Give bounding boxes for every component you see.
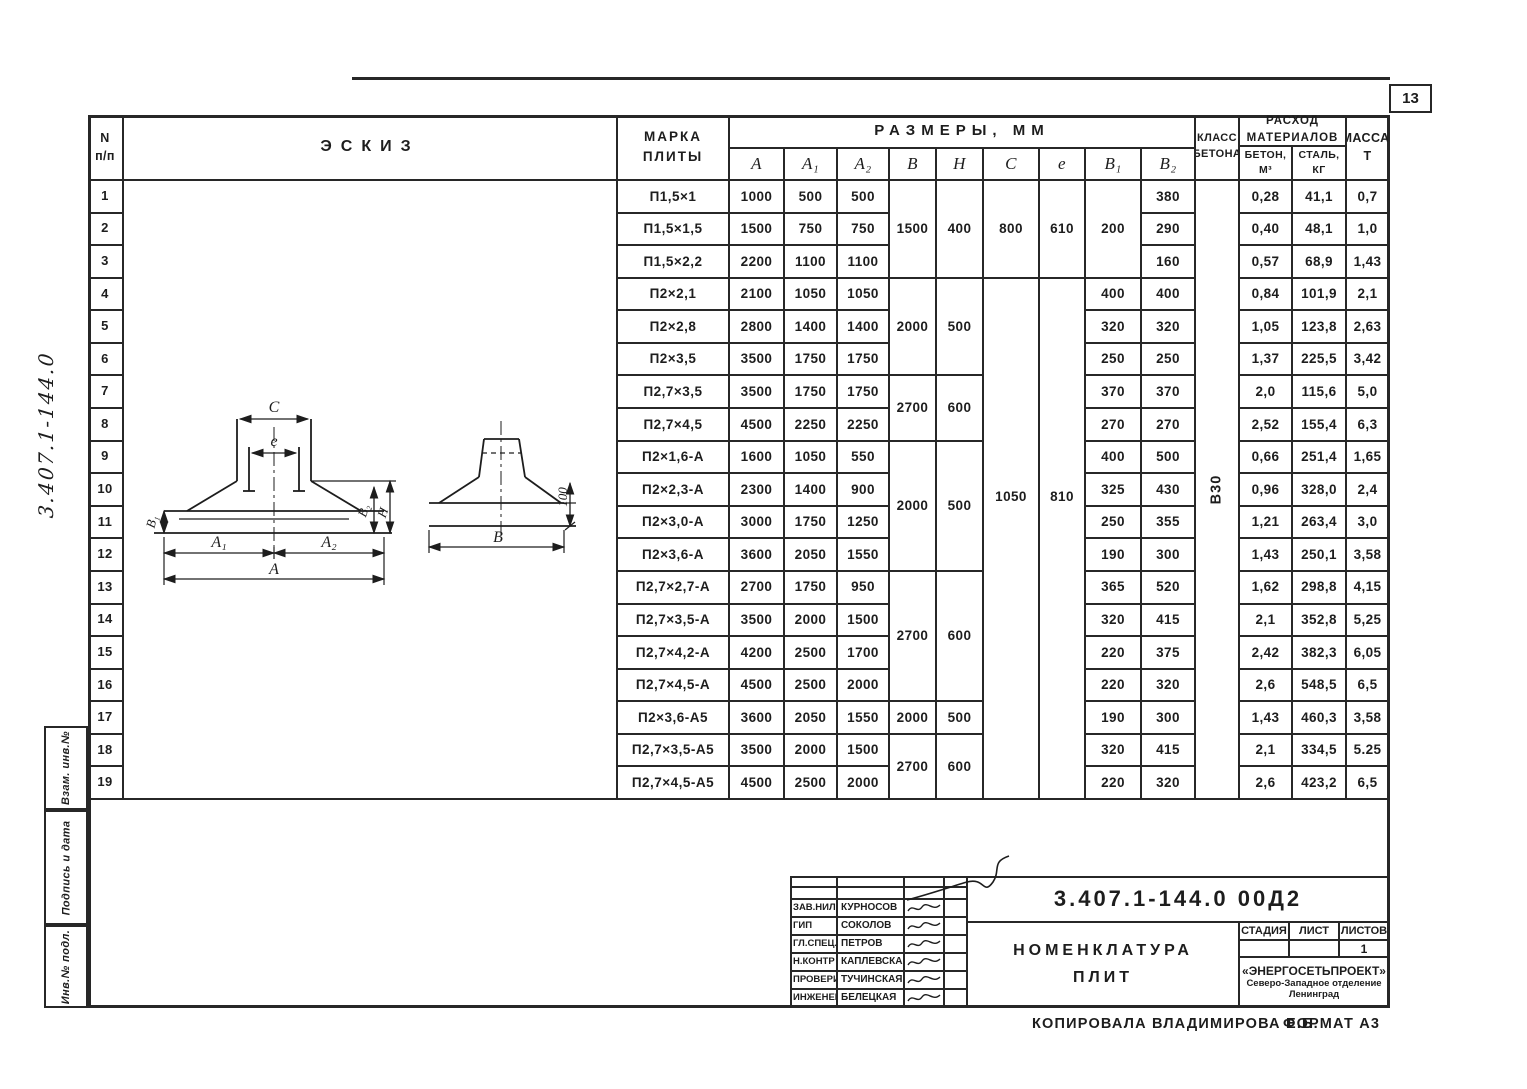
header-mark-text: МАРКА [644,127,702,147]
cell-concrete-13-text: 1,62 [1252,577,1280,597]
cell-e-rows1-3-text: 610 [1050,219,1074,239]
cell-b2-13-text: 520 [1156,577,1180,597]
cell-concrete-18-text: 2,1 [1256,740,1276,760]
cell-b2-8-text: 270 [1156,415,1180,435]
cell-a1-10-text: 1400 [795,480,827,500]
header-concrete-text: БЕТОН, [1245,148,1287,163]
cell-b1-6: 250 [1086,344,1142,377]
cell-a2-3-text: 1100 [848,252,879,272]
sheets-label-cell: ЛИСТОВ [1340,923,1390,941]
cell-b-rows13-16: 2700 [890,572,937,702]
cell-num-17: 17 [88,702,124,735]
cell-num-11-text: 11 [98,513,113,532]
cell-steel-18-text: 334,5 [1301,740,1337,760]
sig-date-6 [945,990,968,1008]
cell-b2-10: 430 [1142,474,1196,507]
cell-mark-13: П2,7×2,7-А [618,572,730,605]
cell-a1-3-text: 1100 [795,252,826,272]
header-materials-group-text: МАТЕРИАЛОВ [1247,130,1339,147]
cell-mass-14: 5,25 [1347,605,1390,638]
cell-mark-10-text: П2×2,3-А [642,480,704,500]
cell-a1-8: 2250 [785,409,838,442]
cell-b1-14: 320 [1086,605,1142,638]
dim-label-b1: B₁ [143,514,161,530]
cell-concrete-11-text: 1,21 [1252,512,1280,532]
header-size-e: e [1040,149,1086,181]
cell-num-5-text: 5 [101,317,109,336]
stage-label: СТАДИЯ [1241,925,1287,937]
cell-a2-11: 1250 [838,507,890,540]
cell-a1-5: 1400 [785,311,838,344]
cell-b2-19-text: 320 [1156,773,1180,793]
cell-mark-11: П2×3,0-А [618,507,730,540]
cell-mark-9: П2×1,6-А [618,442,730,475]
cell-mass-15-text: 6,05 [1354,643,1382,663]
cell-a-12-text: 3600 [741,545,773,565]
cell-a1-15-text: 2500 [795,643,827,663]
cell-steel-7-text: 115,6 [1301,382,1336,402]
cell-mark-8: П2,7×4,5 [618,409,730,442]
cell-mass-11: 3,0 [1347,507,1390,540]
cell-steel-16-text: 548,5 [1301,675,1337,695]
cell-a2-2-text: 750 [851,219,875,239]
cell-mark-9-text: П2×1,6-А [642,447,704,467]
cell-b1-12-text: 190 [1101,545,1125,565]
cell-num-19: 19 [88,767,124,800]
cell-a2-3: 1100 [838,246,890,279]
header-materials-group: РАСХОДМАТЕРИАЛОВ [1240,115,1347,147]
cell-b1-11-text: 250 [1101,512,1125,532]
cell-num-12-text: 12 [97,545,112,564]
cell-h-rows7-8-text: 600 [948,398,972,418]
sheet-top-edge-line [352,77,1390,80]
cell-a1-12-text: 2050 [795,545,827,565]
cell-b2-14: 415 [1142,605,1196,638]
header-concrete: БЕТОН,М³ [1240,147,1293,181]
sheets-value: 1 [1361,942,1368,956]
cell-mark-3-text: П1,5×2,2 [643,252,702,272]
sig-role-6: ИНЖЕНЕР [790,990,838,1008]
cell-concrete-12: 1,43 [1240,539,1293,572]
cell-concrete-3: 0,57 [1240,246,1293,279]
cell-b2-11-text: 355 [1156,512,1180,532]
header-size-b1-text: B₁ [1104,152,1121,177]
cell-a1-2-text: 750 [799,219,823,239]
header-concrete-text: М³ [1259,163,1272,178]
sig-spacer-cell [790,876,838,888]
cell-a2-8-text: 2250 [847,415,879,435]
cell-concrete-class-text: В30 [1206,475,1227,505]
cell-mark-14: П2,7×3,5-А [618,605,730,638]
sig-name-2: СОКОЛОВ [838,918,905,936]
dim-label-c: C [269,399,280,416]
header-num-text: п/п [95,147,115,165]
cell-steel-10-text: 328,0 [1301,480,1337,500]
header-steel-text: КГ [1312,163,1325,178]
cell-concrete-9-text: 0,66 [1252,447,1280,467]
header-mark: МАРКАПЛИТЫ [618,115,730,181]
cell-num-14-text: 14 [97,610,112,629]
sig-name-5-text: ТУЧИНСКАЯ [841,973,903,988]
cell-mass-8-text: 6,3 [1358,415,1378,435]
cell-mass-3: 1,43 [1347,246,1390,279]
cell-a1-14-text: 2000 [795,610,827,630]
cell-b2-6-text: 250 [1156,349,1180,369]
cell-mass-4: 2,1 [1347,279,1390,312]
cell-a2-7: 1750 [838,376,890,409]
cell-a-2: 1500 [730,214,785,247]
cell-concrete-7-text: 2,0 [1256,382,1276,402]
cell-concrete-6: 1,37 [1240,344,1293,377]
sheet-value-cell [1290,941,1340,958]
sig-role-5-text: ПРОВЕРИЛА [793,973,838,987]
dim-label-h: H [374,505,392,520]
sig-signature-3 [905,936,945,954]
cell-concrete-4: 0,84 [1240,279,1293,312]
cell-num-16-text: 16 [97,676,112,695]
cell-num-9-text: 9 [101,447,109,466]
cell-mark-19-text: П2,7×4,5-А5 [632,773,714,793]
cell-concrete-19: 2,6 [1240,767,1293,800]
sig-signature-2 [905,918,945,936]
doc-number: 3.407.1-144.0 00Д2 [1054,886,1302,912]
cell-b2-11: 355 [1142,507,1196,540]
title-block-doc-number: 3.407.1-144.0 00Д2 [968,876,1390,923]
cell-steel-15: 382,3 [1293,637,1347,670]
cell-a2-15-text: 1700 [847,643,879,663]
cell-mass-6: 3,42 [1347,344,1390,377]
cell-num-14: 14 [88,605,124,638]
stamp-box-vzam: Взам. инв.№ [44,726,88,810]
sig-name-6-text: БЕЛЕЦКАЯ [841,991,896,1006]
cell-concrete-2-text: 0,40 [1252,219,1280,239]
cell-mark-1: П1,5×1 [618,181,730,214]
plate-sketch: C e B₁ B₂ H A₁ A₂ A B 100 [124,181,618,801]
header-size-b-text: B [907,152,918,177]
cell-b2-15-text: 375 [1156,643,1180,663]
cell-h-rows18-19: 600 [937,735,984,800]
header-size-h: H [937,149,984,181]
cell-num-9: 9 [88,442,124,475]
cell-a1-7-text: 1750 [795,382,827,402]
cell-concrete-9: 0,66 [1240,442,1293,475]
format-label: ФОРМАТ А3 [1283,1016,1380,1032]
cell-mass-3-text: 1,43 [1354,252,1382,272]
cell-mark-15: П2,7×4,2-А [618,637,730,670]
cell-mark-3: П1,5×2,2 [618,246,730,279]
sig-role-1-text: ЗАВ.НИЛКЭ [793,901,838,915]
cell-b-rows18-19-text: 2700 [897,757,929,777]
cell-mark-13-text: П2,7×2,7-А [636,577,710,597]
cell-mass-12: 3,58 [1347,539,1390,572]
cell-a2-17-text: 1550 [847,708,879,728]
cell-h-rows1-3: 400 [937,181,984,279]
header-size-h-text: H [953,152,966,177]
cell-mass-13-text: 4,15 [1354,577,1382,597]
handwritten-doc-code: 3.407.1-144.0 [34,347,64,522]
cell-a1-13: 1750 [785,572,838,605]
cell-a-16: 4500 [730,670,785,703]
cell-num-18: 18 [88,735,124,768]
header-materials-group-text: РАСХОД [1266,115,1319,130]
dim-label-a: A [268,561,279,578]
cell-b2-17: 300 [1142,702,1196,735]
sig-role-3: ГЛ.СПЕЦ. [790,936,838,954]
cell-mass-1-text: 0,7 [1358,187,1378,207]
stage-value-cell [1240,941,1290,958]
cell-steel-4: 101,9 [1293,279,1347,312]
cell-num-12: 12 [88,539,124,572]
sig-name-4-text: КАПЛЕВСКАЯ [841,955,905,970]
header-size-c: C [984,149,1040,181]
cell-h-rows9-12-text: 500 [948,496,972,516]
cell-h-rows9-12: 500 [937,442,984,572]
title-block-title: НОМЕНКЛАТУРА ПЛИТ [968,923,1240,1008]
cell-a-3-text: 2200 [741,252,773,272]
sig-role-6-text: ИНЖЕНЕР [793,991,838,1005]
cell-num-2: 2 [88,214,124,247]
cell-b1-5: 320 [1086,311,1142,344]
cell-a2-13-text: 950 [851,577,875,597]
cell-b1-8: 270 [1086,409,1142,442]
organization-cell: «ЭНЕРГОСЕТЬПРОЕКТ» Северо-Западное отдел… [1240,958,1390,1008]
cell-a1-12: 2050 [785,539,838,572]
cell-steel-11-text: 263,4 [1301,512,1337,532]
cell-a-7: 3500 [730,376,785,409]
cell-a-8-text: 4500 [741,415,773,435]
cell-c-rows4-19: 1050 [984,279,1040,800]
cell-b-rows1-3: 1500 [890,181,937,279]
cell-a-8: 4500 [730,409,785,442]
sig-signature-4 [905,954,945,972]
cell-concrete-14-text: 2,1 [1256,610,1276,630]
cell-mark-4: П2×2,1 [618,279,730,312]
cell-mark-17-text: П2×3,6-А5 [638,708,708,728]
cell-b1-15-text: 220 [1101,643,1125,663]
cell-h-rows1-3-text: 400 [948,219,972,239]
cell-b2-3-text: 160 [1156,252,1180,272]
cell-concrete-class: В30 [1196,181,1240,800]
dim-label-e: e [270,433,277,450]
cell-b1-rows1-3: 200 [1086,181,1142,279]
cell-h-rows13-16-text: 600 [948,626,972,646]
cell-b1-19: 220 [1086,767,1142,800]
signature [906,919,942,933]
cell-a1-9-text: 1050 [795,447,827,467]
cell-b2-14-text: 415 [1156,610,1180,630]
cell-num-15: 15 [88,637,124,670]
sig-name-6: БЕЛЕЦКАЯ [838,990,905,1008]
cell-a1-6: 1750 [785,344,838,377]
cell-num-4-text: 4 [101,285,109,304]
cell-steel-9: 251,4 [1293,442,1347,475]
cell-a1-19-text: 2500 [795,773,827,793]
cell-steel-3-text: 68,9 [1305,252,1333,272]
cell-a-17: 3600 [730,702,785,735]
cell-mass-15: 6,05 [1347,637,1390,670]
cell-steel-2: 48,1 [1293,214,1347,247]
cell-a1-8-text: 2250 [795,415,827,435]
cell-h-rows7-8: 600 [937,376,984,441]
header-concrete-class-text: БЕТОНА [1196,147,1240,163]
cell-concrete-12-text: 1,43 [1252,545,1280,565]
cell-b2-8: 270 [1142,409,1196,442]
dim-label-a1: A₁ [210,534,226,551]
cell-a-18-text: 3500 [741,740,773,760]
sig-role-4: Н.КОНТР [790,954,838,972]
cell-steel-18: 334,5 [1293,735,1347,768]
header-size-a-text: A [751,152,762,177]
cell-a1-11-text: 1750 [795,512,827,532]
cell-b2-7-text: 370 [1156,382,1180,402]
cell-concrete-8-text: 2,52 [1252,415,1280,435]
cell-b2-15: 375 [1142,637,1196,670]
cell-a2-9: 550 [838,442,890,475]
cell-a-13: 2700 [730,572,785,605]
cell-b2-7: 370 [1142,376,1196,409]
header-mark-text: ПЛИТЫ [643,147,703,167]
cell-num-13: 13 [88,572,124,605]
cell-b2-5: 320 [1142,311,1196,344]
cell-concrete-10: 0,96 [1240,474,1293,507]
cell-c-rows4-19-text: 1050 [995,487,1027,507]
cell-b2-2-text: 290 [1156,219,1180,239]
cell-steel-8: 155,4 [1293,409,1347,442]
dim-label-100: 100 [555,487,570,507]
cell-mark-18: П2,7×3,5-А5 [618,735,730,768]
cell-h-rows17-17: 500 [937,702,984,735]
cell-steel-4-text: 101,9 [1301,284,1337,304]
cell-mass-19-text: 6,5 [1358,773,1378,793]
cell-b-rows1-3-text: 1500 [897,219,929,239]
cell-steel-12: 250,1 [1293,539,1347,572]
cell-b-rows7-8-text: 2700 [897,398,929,418]
cell-concrete-3-text: 0,57 [1252,252,1280,272]
cell-a-2-text: 1500 [741,219,773,239]
cell-num-16: 16 [88,670,124,703]
signature [906,991,942,1005]
cell-concrete-17: 1,43 [1240,702,1293,735]
cell-b-rows18-19: 2700 [890,735,937,800]
cell-h-rows18-19-text: 600 [948,757,972,777]
cell-a-3: 2200 [730,246,785,279]
cell-a1-16-text: 2500 [795,675,827,695]
cell-b1-8-text: 270 [1101,415,1125,435]
sig-role-3-text: ГЛ.СПЕЦ. [793,937,837,951]
cell-concrete-11: 1,21 [1240,507,1293,540]
cell-h-rows4-6-text: 500 [948,317,972,337]
stage-label-cell: СТАДИЯ [1240,923,1290,941]
cell-concrete-18: 2,1 [1240,735,1293,768]
cell-steel-3: 68,9 [1293,246,1347,279]
cell-mass-7-text: 5,0 [1358,382,1378,402]
cell-mark-10: П2×2,3-А [618,474,730,507]
signature [906,973,942,987]
dim-label-b2: B₂ [354,502,373,519]
cell-b2-4: 400 [1142,279,1196,312]
org-name: «ЭНЕРГОСЕТЬПРОЕКТ» [1242,964,1386,978]
header-num: Nп/п [88,115,124,181]
cell-a2-7-text: 1750 [847,382,879,402]
cell-a-13-text: 2700 [741,577,773,597]
cell-mark-15-text: П2,7×4,2-А [636,643,710,663]
header-sketch: ЭСКИЗ [124,115,618,181]
cell-a-4: 2100 [730,279,785,312]
cell-steel-7: 115,6 [1293,376,1347,409]
sig-signature-6 [905,990,945,1008]
cell-steel-16: 548,5 [1293,670,1347,703]
sig-spacer-cell [838,876,905,888]
header-concrete-class: КЛАССБЕТОНА [1196,115,1240,181]
cell-a2-6-text: 1750 [847,349,879,369]
cell-steel-17-text: 460,3 [1301,708,1337,728]
cell-b2-10-text: 430 [1156,480,1180,500]
cell-b1-18-text: 320 [1101,740,1125,760]
sheet-label: ЛИСТ [1299,925,1329,937]
cell-concrete-8: 2,52 [1240,409,1293,442]
header-size-b2-text: B₂ [1159,152,1176,177]
cell-a-7-text: 3500 [741,382,773,402]
sig-role-5: ПРОВЕРИЛА [790,972,838,990]
sig-name-3: ПЕТРОВ [838,936,905,954]
org-city: Ленинград [1289,989,1339,1000]
drawing-sheet: 13 Взам. инв.№ Подпись и дата Инв.№ подл… [0,0,1527,1089]
sig-name-4: КАПЛЕВСКАЯ [838,954,905,972]
cell-b1-7: 370 [1086,376,1142,409]
cell-num-19-text: 19 [97,773,112,792]
cell-mark-12: П2×3,6-А [618,539,730,572]
cell-num-3-text: 3 [101,252,109,271]
cell-steel-5-text: 123,8 [1301,317,1337,337]
dim-label-b: B [493,529,503,546]
stamp-label: Инв.№ подл. [60,929,72,1003]
sig-role-1: ЗАВ.НИЛКЭ [790,900,838,918]
cell-mass-2-text: 1,0 [1358,219,1378,239]
cell-steel-6-text: 225,5 [1301,349,1337,369]
sig-date-4 [945,954,968,972]
cell-a-16-text: 4500 [741,675,773,695]
cell-b2-17-text: 300 [1156,708,1180,728]
cell-mass-1: 0,7 [1347,181,1390,214]
cell-mass-14-text: 5,25 [1354,610,1382,630]
sig-role-4-text: Н.КОНТР [793,955,835,969]
cell-concrete-7: 2,0 [1240,376,1293,409]
cell-mark-16-text: П2,7×4,5-А [636,675,710,695]
cell-num-7: 7 [88,376,124,409]
header-size-a2-text: A₂ [854,152,871,177]
cell-a1-11: 1750 [785,507,838,540]
cell-num-2-text: 2 [101,219,109,238]
cell-num-6: 6 [88,344,124,377]
header-num-text: N [100,129,109,147]
cell-concrete-17-text: 1,43 [1252,708,1280,728]
signature-swoosh [905,852,1015,904]
cell-mass-17: 3,58 [1347,702,1390,735]
header-size-a2: A₂ [838,149,890,181]
cell-a1-1: 500 [785,181,838,214]
header-sizes-group-text: РАЗМЕРЫ, ММ [874,120,1049,142]
cell-mass-17-text: 3,58 [1354,708,1382,728]
cell-mass-12-text: 3,58 [1354,545,1382,565]
cell-mark-6-text: П2×3,5 [650,349,697,369]
sheet-title-line2: ПЛИТ [1073,969,1133,987]
cell-steel-1: 41,1 [1293,181,1347,214]
sig-name-1: КУРНОСОВ [838,900,905,918]
cell-a2-9-text: 550 [851,447,875,467]
cell-e-rows4-19-text: 810 [1050,487,1074,507]
cell-mass-18-text: 5.25 [1354,740,1382,760]
cell-a1-7: 1750 [785,376,838,409]
